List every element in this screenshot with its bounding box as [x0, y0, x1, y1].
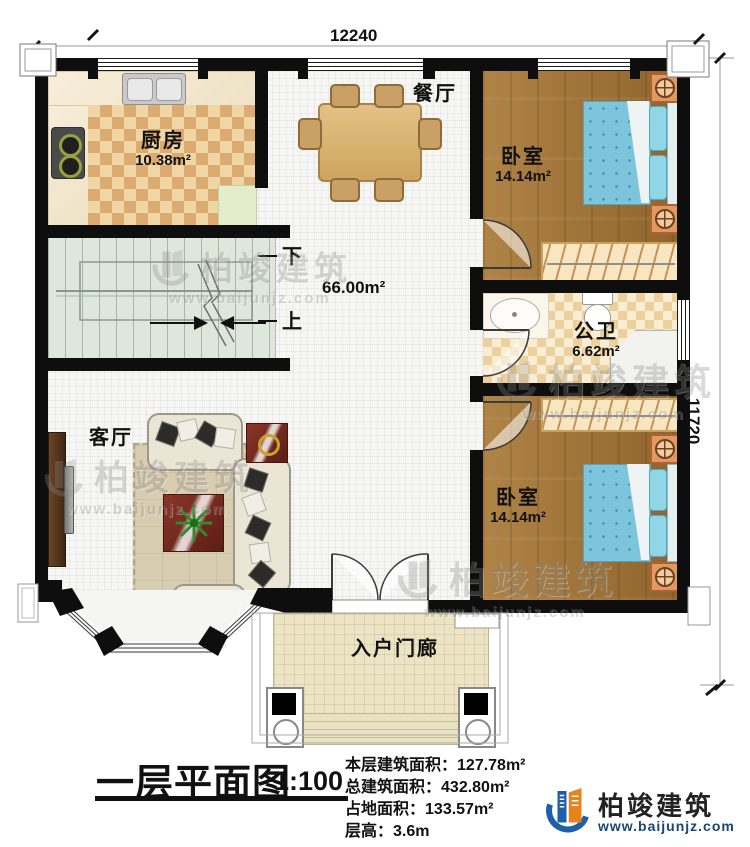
- nightstand: [650, 73, 680, 103]
- sofa-pillow: [214, 427, 237, 450]
- bedroom1-bed: [583, 101, 677, 203]
- window: [98, 58, 198, 71]
- room-label-living: 客厅: [76, 428, 146, 449]
- stat-storey-height: 层高：3.6m: [345, 817, 429, 841]
- porch-column-right: [458, 687, 496, 748]
- side-table: [246, 423, 288, 463]
- room-label-bathroom: 公卫 6.62m²: [558, 322, 634, 360]
- nightstand: [650, 562, 680, 592]
- bathroom-sink: [490, 298, 540, 333]
- nightstand: [650, 204, 680, 234]
- stat-floor-area: 本层建筑面积：127.78m²: [345, 751, 526, 775]
- room-label-bedroom1: 卧室 14.14m²: [480, 147, 566, 185]
- dining-table: [318, 103, 422, 182]
- wall-tab: [423, 71, 435, 79]
- wall-segment: [470, 280, 690, 293]
- dining-chair: [374, 178, 404, 202]
- bedroom2-bed: [583, 464, 677, 560]
- nightstand: [650, 434, 680, 464]
- wall-segment: [470, 267, 483, 330]
- bedroom1-wardrobe: [541, 242, 681, 284]
- stair-area-label: 66.00m²: [322, 278, 385, 298]
- wall-segment: [470, 58, 483, 219]
- wall-tab: [528, 71, 538, 79]
- wall-segment: [35, 358, 290, 371]
- page-scale: 1:100: [274, 766, 343, 797]
- room-label-kitchen: 厨房 10.38m²: [108, 131, 218, 169]
- porch-column-left: [266, 687, 304, 748]
- wall-tab: [298, 71, 308, 79]
- wall-segment: [470, 383, 690, 396]
- plant-icon: [174, 503, 214, 543]
- wall-tab: [630, 71, 640, 79]
- coffee-table: [163, 494, 224, 552]
- window: [677, 300, 690, 360]
- dining-chair: [418, 118, 442, 150]
- dining-chair: [330, 84, 360, 108]
- dining-chair: [330, 178, 360, 202]
- stair-up-label: 上: [282, 305, 302, 334]
- wall-tab: [88, 71, 98, 79]
- window: [308, 58, 423, 71]
- bedroom2-wardrobe: [541, 398, 681, 432]
- company-logo-url: www.baijunjz.com: [598, 818, 735, 834]
- window: [538, 58, 630, 71]
- room-label-porch: 入户门廊: [340, 639, 450, 660]
- wall-segment: [35, 58, 48, 588]
- dimension-right: 11720: [683, 398, 703, 444]
- wall-segment: [255, 58, 268, 188]
- porch-steps: [296, 713, 466, 745]
- room-label-bedroom2: 卧室 14.14m²: [475, 488, 561, 526]
- wall-segment: [423, 600, 690, 613]
- dimension-top: 12240: [330, 26, 377, 46]
- entry-porch-floor: [273, 613, 489, 717]
- kitchen-sink: [122, 73, 186, 105]
- stat-footprint-area: 占地面积：133.57m²: [345, 795, 494, 819]
- dining-chair: [298, 118, 322, 150]
- floor-plan-page: 12240 11720 厨房 10.38m² 餐厅 卧室 14.14m² 公卫 …: [0, 0, 750, 847]
- wall-tab: [198, 71, 208, 79]
- room-label-dining: 餐厅: [400, 84, 470, 105]
- wall-segment: [35, 225, 290, 238]
- title-underline: [95, 796, 348, 801]
- company-logo-icon: [544, 783, 592, 835]
- staircase: [48, 238, 276, 358]
- stat-total-area: 总建筑面积：432.80m²: [345, 773, 510, 797]
- tv: [64, 466, 74, 534]
- kitchen-mat: [218, 185, 257, 227]
- kitchen-stove: [51, 127, 85, 179]
- stair-down-label: 下: [282, 240, 302, 269]
